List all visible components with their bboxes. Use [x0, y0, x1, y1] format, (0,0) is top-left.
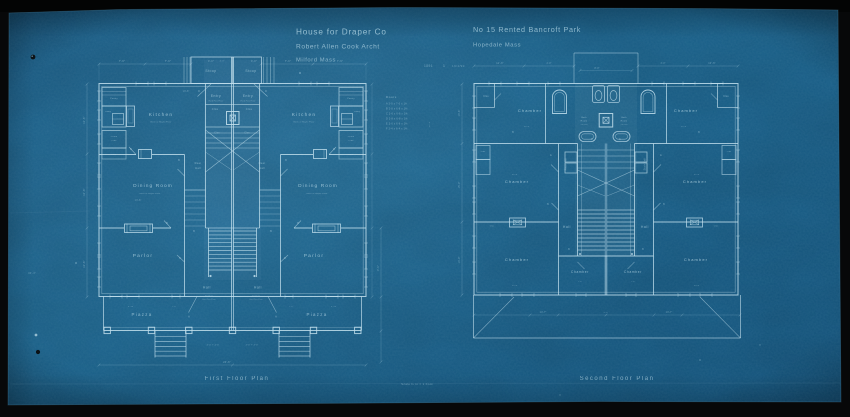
- svg-text:Entry: Entry: [211, 94, 221, 98]
- svg-text:Hard Pine Floor: Hard Pine Floor: [202, 298, 216, 301]
- svg-text:Doors: Doors: [386, 95, 397, 99]
- svg-text:B: B: [285, 158, 287, 162]
- svg-text:Hopedale Mass: Hopedale Mass: [473, 43, 521, 49]
- svg-text:16'-0": 16'-0": [681, 126, 688, 128]
- svg-text:Clos: Clos: [483, 95, 489, 98]
- svg-text:11'-6": 11'-6": [83, 260, 86, 267]
- svg-text:Entry: Entry: [243, 94, 253, 98]
- svg-text:13'-0": 13'-0": [512, 174, 519, 176]
- svg-text:7'-9": 7'-9": [119, 59, 125, 63]
- svg-text:Chamber: Chamber: [624, 270, 642, 274]
- svg-text:Robert Allen Cook Archt: Robert Allen Cook Archt: [296, 44, 380, 51]
- svg-text:Lobby: Lobby: [105, 111, 111, 113]
- svg-text:D: D: [265, 89, 267, 93]
- svg-text:Clos: Clos: [212, 107, 219, 111]
- svg-text:Birch or Maple Floor: Birch or Maple Floor: [150, 122, 171, 124]
- svg-text:Clos: Clos: [349, 140, 354, 142]
- svg-text:Chamber: Chamber: [683, 179, 707, 184]
- svg-text:Dining Room: Dining Room: [133, 183, 173, 189]
- svg-text:Birch or Maple Floor: Birch or Maple Floor: [306, 193, 327, 195]
- svg-text:No 15 Rented Bancroft Park: No 15 Rented Bancroft Park: [473, 25, 581, 34]
- svg-text:Chamber: Chamber: [571, 270, 589, 274]
- svg-text:12'-6": 12'-6": [83, 188, 86, 196]
- svg-text:B: B: [270, 229, 272, 233]
- svg-text:B: B: [166, 221, 168, 225]
- svg-text:B: B: [333, 147, 335, 151]
- svg-text:24'-6": 24'-6": [223, 360, 231, 364]
- svg-text:4'-0": 4'-0": [546, 62, 551, 65]
- svg-text:Chamber: Chamber: [674, 108, 698, 113]
- svg-text:Birch or Maple Floor: Birch or Maple Floor: [139, 193, 160, 195]
- svg-text:5'-8": 5'-8": [603, 312, 608, 314]
- svg-text:12'-6": 12'-6": [496, 62, 504, 65]
- svg-text:Piazza: Piazza: [307, 312, 328, 317]
- svg-text:B: B: [178, 158, 180, 162]
- svg-text:3'-0" + 3'-0": 3'-0" + 3'-0": [206, 345, 219, 347]
- svg-text:China: China: [348, 136, 355, 138]
- svg-text:Parlor: Parlor: [133, 253, 154, 259]
- svg-text:Hall: Hall: [563, 225, 571, 229]
- svg-text:Scale ¼ in = 1 Foot: Scale ¼ in = 1 Foot: [401, 382, 433, 386]
- svg-text:Hall: Hall: [254, 286, 262, 290]
- svg-text:9'-6": 9'-6": [377, 265, 380, 271]
- svg-text:Chamber: Chamber: [505, 179, 529, 184]
- svg-text:B 2-8 x 6-8 x 1⅜: B 2-8 x 6-8 x 1⅜: [386, 108, 408, 111]
- svg-text:8'-0": 8'-0": [594, 67, 599, 70]
- svg-text:Pantry: Pantry: [110, 97, 118, 100]
- svg-text:Clos: Clos: [727, 151, 732, 153]
- svg-text:B: B: [297, 221, 299, 225]
- svg-text:11'-6": 11'-6": [83, 116, 86, 123]
- svg-text:Chamber: Chamber: [518, 108, 542, 113]
- svg-text:4'-0": 4'-0": [660, 62, 665, 65]
- svg-text:Milford Mass: Milford Mass: [296, 58, 336, 64]
- svg-text:7'-9": 7'-9": [337, 59, 343, 63]
- svg-text:7'-6": 7'-6": [631, 281, 636, 283]
- svg-text:E 2-6 x 6-6 x 1⅜: E 2-6 x 6-6 x 1⅜: [386, 123, 408, 126]
- svg-text:Hard Pine Floor: Hard Pine Floor: [249, 298, 263, 301]
- svg-text:Birch or Maple Floor: Birch or Maple Floor: [293, 122, 314, 124]
- svg-text:7'-0": 7'-0": [289, 306, 294, 308]
- svg-text:13'-6": 13'-6": [458, 110, 461, 117]
- svg-text:16'-0": 16'-0": [524, 126, 531, 128]
- svg-text:A 3-0 x 7-0 x 1¾: A 3-0 x 7-0 x 1¾: [386, 103, 408, 106]
- svg-text:Kitchen: Kitchen: [292, 112, 316, 118]
- svg-text:Hard Pine Floor: Hard Pine Floor: [209, 100, 224, 103]
- svg-text:Parlor: Parlor: [304, 253, 325, 259]
- svg-text:B: B: [284, 256, 286, 260]
- svg-text:3'-0" + 3'-0": 3'-0" + 3'-0": [245, 345, 258, 347]
- svg-text:Clos: Clos: [723, 95, 729, 98]
- svg-text:Clos: Clos: [714, 226, 719, 228]
- svg-text:13'-0": 13'-0": [694, 174, 701, 176]
- svg-text:1: 1: [443, 64, 445, 68]
- svg-text:Dining Room: Dining Room: [298, 183, 338, 189]
- svg-text:12'-6": 12'-6": [708, 62, 716, 65]
- svg-text:Clos: Clos: [490, 226, 495, 228]
- svg-text:7'-6": 7'-6": [165, 59, 171, 63]
- svg-text:C 2-6 x 6-6 x 1⅜: C 2-6 x 6-6 x 1⅜: [386, 113, 408, 116]
- svg-text:Pantry: Pantry: [347, 97, 355, 100]
- svg-text:B: B: [130, 147, 132, 151]
- svg-text:Hall: Hall: [203, 286, 211, 290]
- svg-text:Rear: Rear: [195, 161, 202, 165]
- svg-text:28'-6": 28'-6": [429, 121, 431, 128]
- svg-text:Lobby: Lobby: [354, 111, 360, 113]
- svg-text:1891: 1891: [424, 64, 433, 68]
- svg-text:Second Floor Plan: Second Floor Plan: [580, 376, 655, 382]
- svg-text:6'-10": 6'-10": [128, 306, 134, 308]
- svg-text:Hall: Hall: [259, 166, 265, 170]
- svg-text:B: B: [193, 229, 195, 233]
- svg-text:A: A: [188, 315, 190, 319]
- svg-text:7'-0": 7'-0": [172, 306, 177, 308]
- svg-text:Kitchen: Kitchen: [149, 112, 173, 118]
- svg-text:Hall: Hall: [641, 225, 649, 229]
- svg-text:D 2-8 x 6-8 x 1⅜: D 2-8 x 6-8 x 1⅜: [386, 118, 408, 121]
- svg-text:Vestibule: Vestibule: [205, 295, 213, 298]
- svg-text:13'-6": 13'-6": [135, 199, 142, 202]
- svg-text:14'-7": 14'-7": [666, 311, 673, 314]
- svg-text:Hall: Hall: [195, 166, 201, 170]
- svg-text:B: B: [179, 256, 181, 260]
- svg-text:Piazza: Piazza: [132, 312, 153, 317]
- svg-text:F 2-4 x 6-4 x 1⅜: F 2-4 x 6-4 x 1⅜: [386, 128, 407, 131]
- svg-text:13'-6": 13'-6": [512, 285, 519, 287]
- svg-text:Chamber: Chamber: [684, 257, 708, 262]
- svg-text:D: D: [198, 89, 200, 93]
- svg-text:Clos: Clos: [481, 151, 486, 153]
- svg-text:Stair Hall: Stair Hall: [644, 157, 647, 170]
- svg-text:Clos: Clos: [112, 140, 117, 142]
- svg-text:13'-6": 13'-6": [183, 90, 190, 93]
- svg-text:Hard Pine Floor: Hard Pine Floor: [241, 100, 256, 103]
- svg-text:Chamber: Chamber: [505, 257, 529, 262]
- svg-text:34'-4": 34'-4": [28, 271, 36, 275]
- svg-text:First Floor Plan: First Floor Plan: [205, 376, 270, 382]
- svg-text:China: China: [111, 136, 118, 138]
- svg-text:House for Draper Co: House for Draper Co: [296, 28, 387, 37]
- svg-text:7'-6": 7'-6": [578, 281, 583, 283]
- svg-text:19/4/99: 19/4/99: [452, 64, 465, 68]
- svg-text:7'-6": 7'-6": [285, 59, 291, 63]
- svg-text:Vestibule: Vestibule: [252, 295, 260, 298]
- svg-text:15'-0": 15'-0": [458, 182, 461, 189]
- svg-text:A: A: [275, 315, 277, 319]
- svg-text:6'-10": 6'-10": [331, 306, 337, 308]
- svg-text:Rear: Rear: [259, 161, 266, 165]
- svg-text:13'-0": 13'-0": [458, 257, 461, 264]
- svg-text:13'-6": 13'-6": [694, 285, 701, 287]
- svg-text:Clos: Clos: [246, 107, 253, 111]
- svg-text:14'-7": 14'-7": [540, 311, 547, 314]
